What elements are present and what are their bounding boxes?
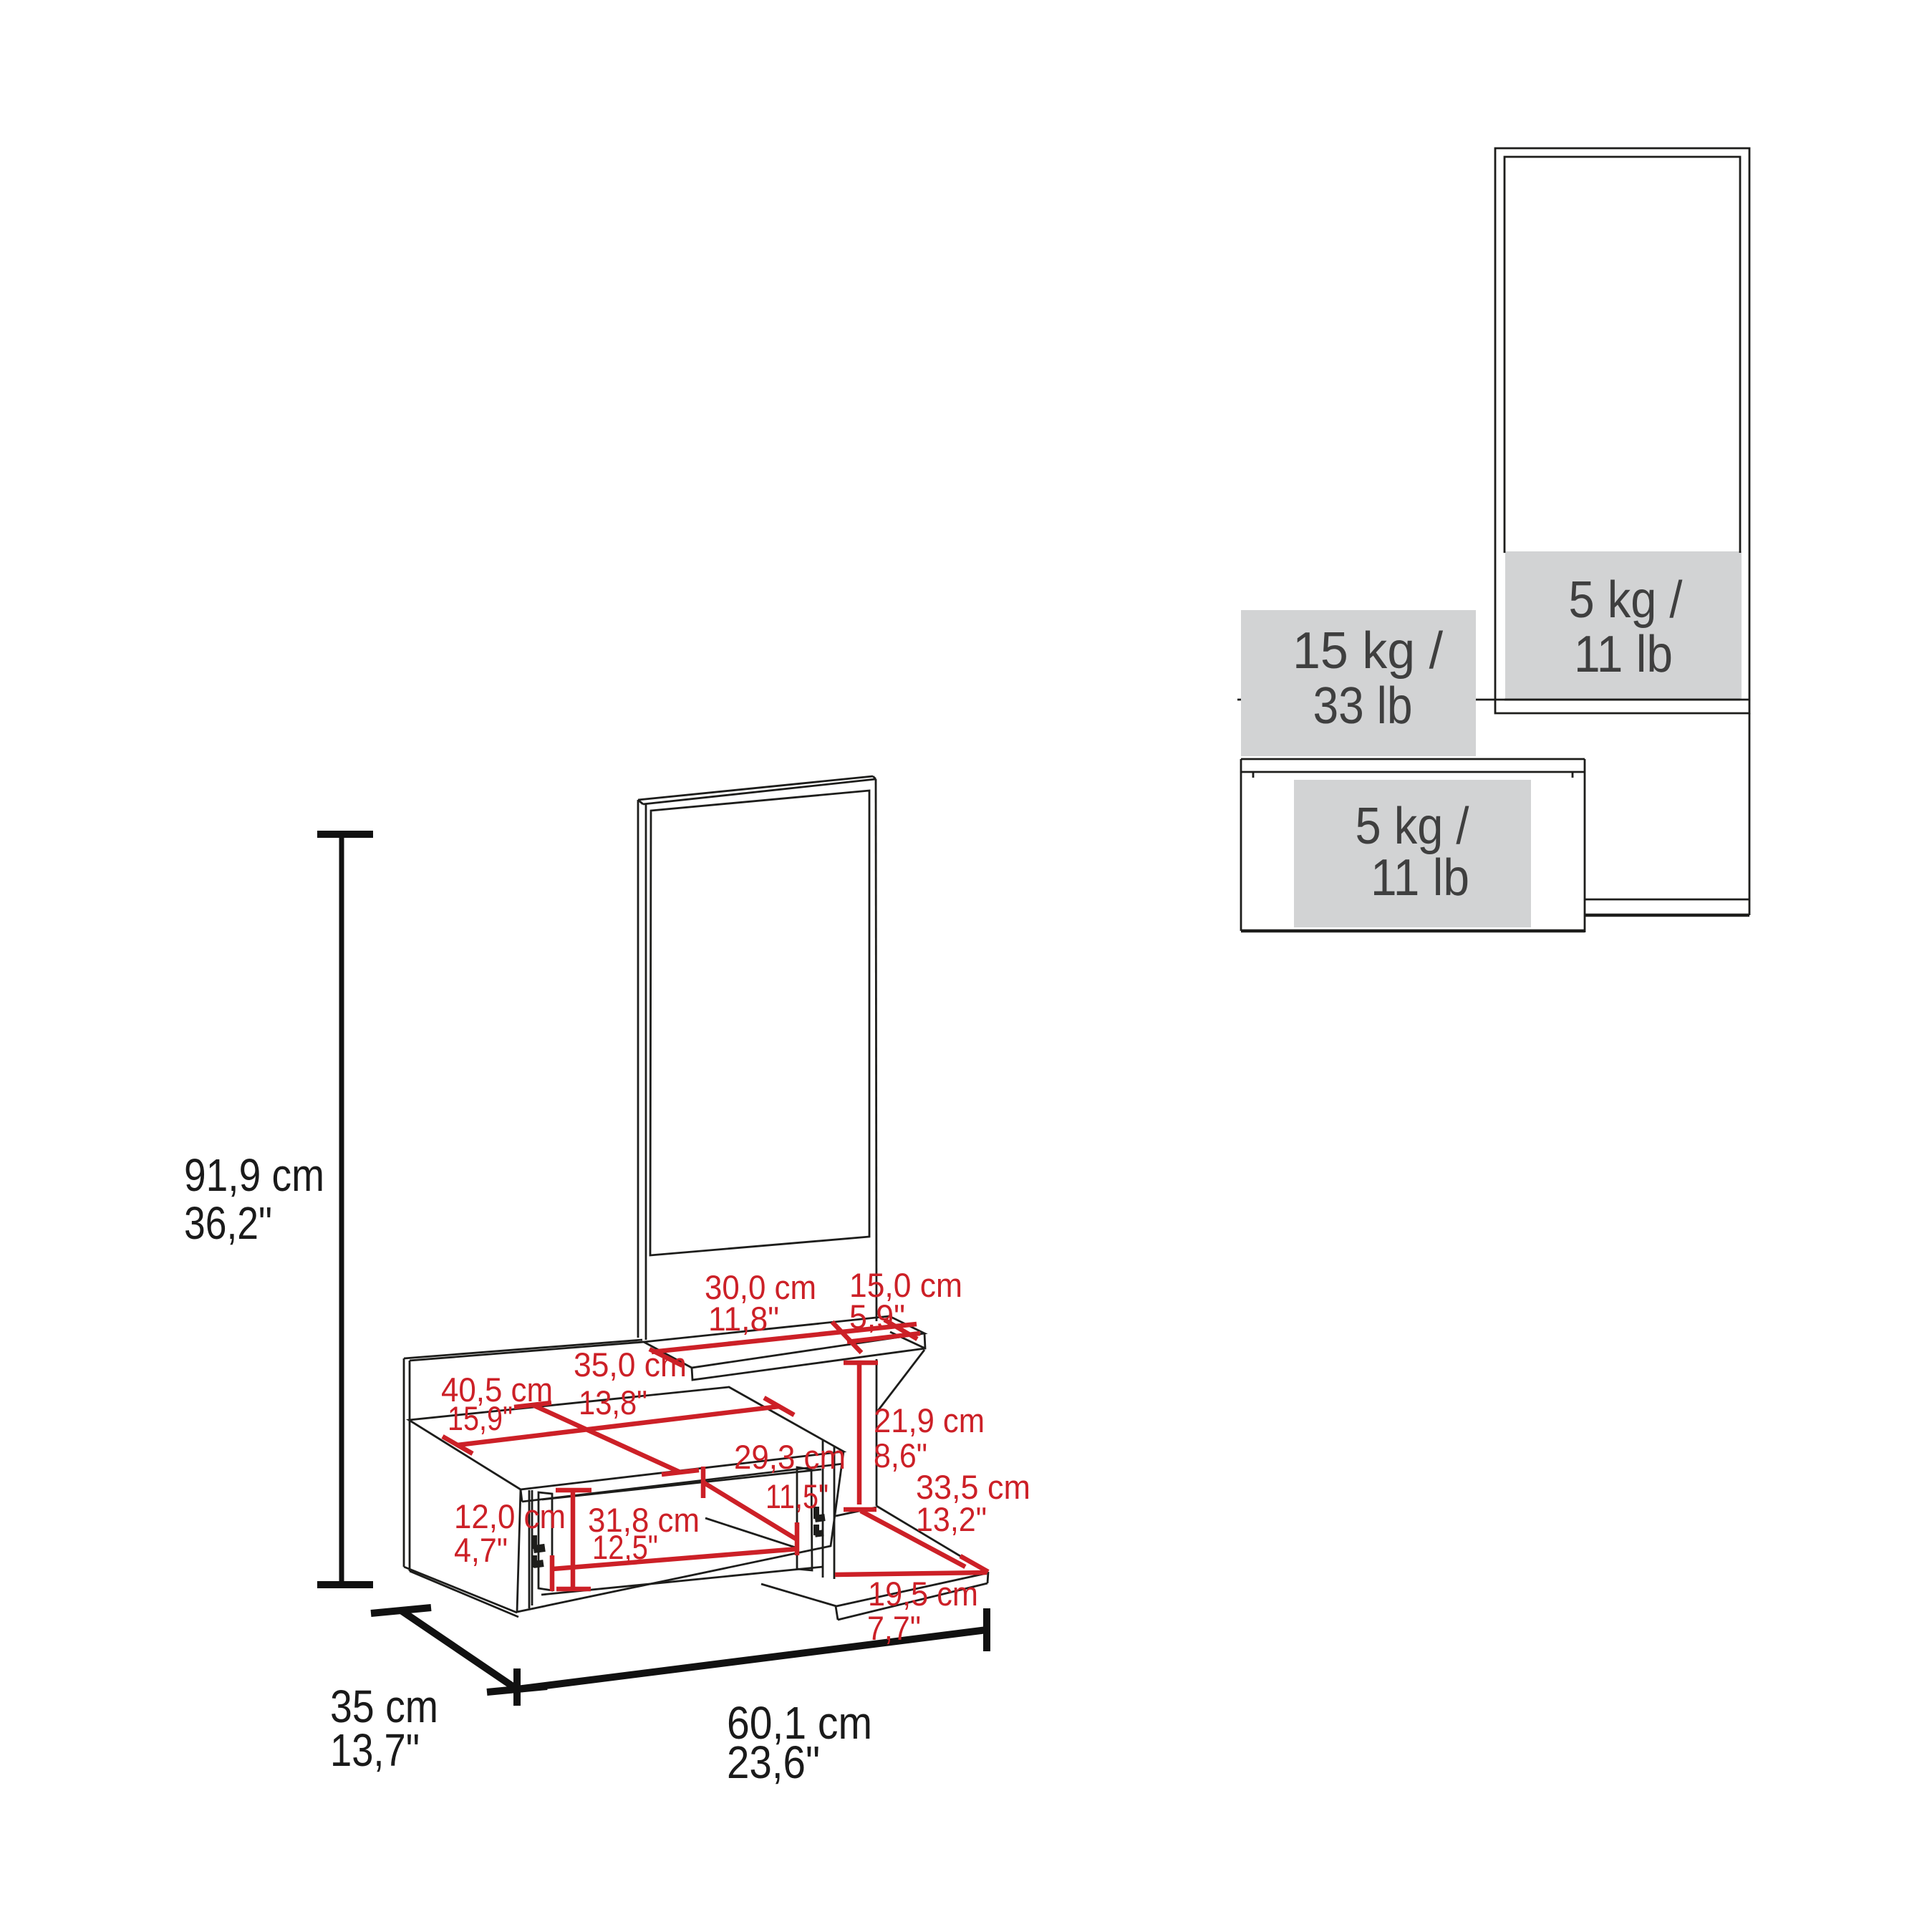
svg-text:35,0 cm: 35,0 cm [574, 1346, 687, 1383]
svg-text:13,8": 13,8" [579, 1383, 647, 1421]
svg-text:7,7": 7,7" [867, 1609, 921, 1647]
svg-text:21,9 cm: 21,9 cm [874, 1401, 985, 1439]
svg-text:4,7": 4,7" [454, 1531, 508, 1569]
svg-text:19,5 cm: 19,5 cm [868, 1575, 978, 1613]
svg-text:11 lb: 11 lb [1574, 626, 1673, 683]
svg-text:13,7": 13,7" [330, 1724, 420, 1776]
svg-text:11,8": 11,8" [708, 1300, 779, 1338]
svg-text:36,2": 36,2" [184, 1197, 272, 1249]
svg-text:23,6": 23,6" [727, 1737, 820, 1788]
svg-text:11,5": 11,5" [765, 1477, 829, 1515]
svg-text:29,3 cm: 29,3 cm [734, 1438, 846, 1476]
svg-text:15 kg /: 15 kg / [1293, 622, 1443, 680]
svg-text:33 lb: 33 lb [1313, 677, 1413, 735]
svg-text:11 lb: 11 lb [1371, 849, 1469, 907]
svg-text:13,2": 13,2" [916, 1500, 987, 1538]
svg-text:5,9": 5,9" [849, 1298, 905, 1336]
svg-text:12,0 cm: 12,0 cm [454, 1497, 566, 1535]
svg-text:91,9 cm: 91,9 cm [184, 1149, 324, 1201]
svg-text:5 kg /: 5 kg / [1356, 798, 1469, 855]
svg-text:15,9": 15,9" [448, 1399, 513, 1437]
svg-text:12,5": 12,5" [592, 1528, 658, 1566]
svg-text:5 kg /: 5 kg / [1569, 571, 1683, 629]
